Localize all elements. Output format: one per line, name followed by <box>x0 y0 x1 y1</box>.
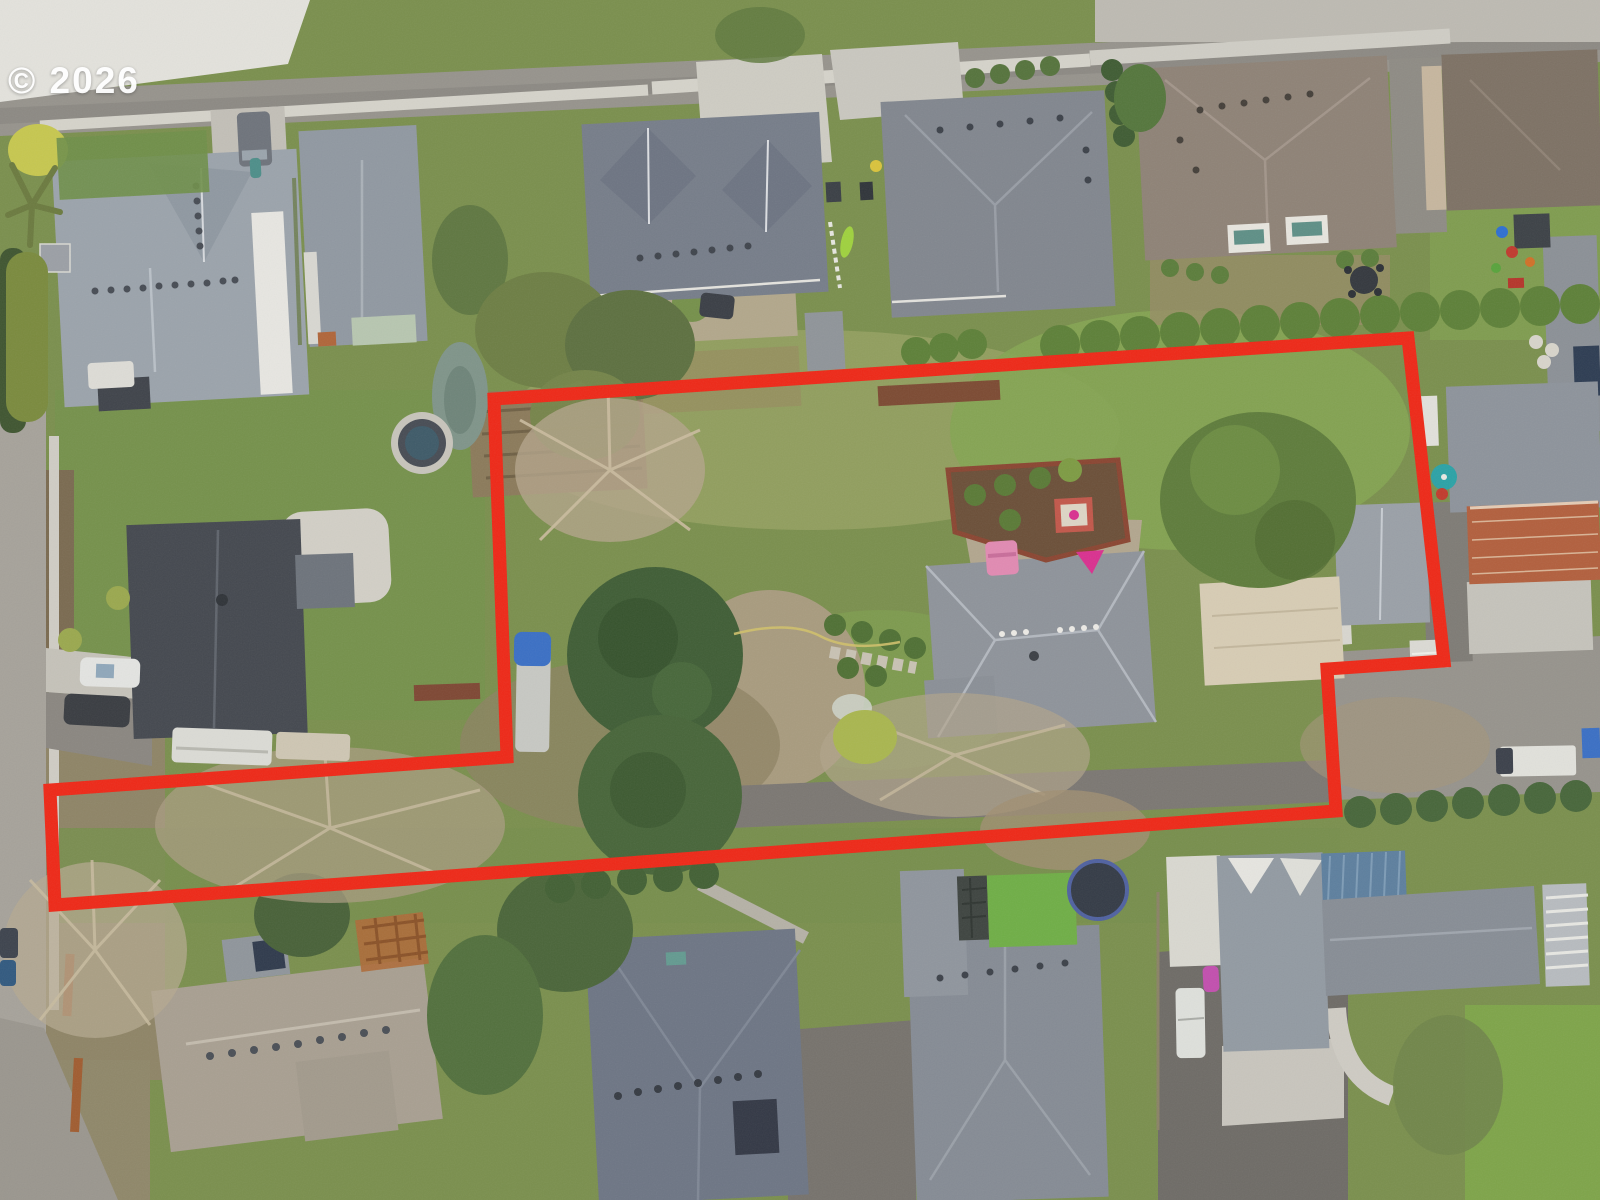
aerial-photo-canvas <box>0 0 1600 1200</box>
photo-grain-overlay <box>0 0 1600 1200</box>
aerial-photo: © 2026 <box>0 0 1600 1200</box>
